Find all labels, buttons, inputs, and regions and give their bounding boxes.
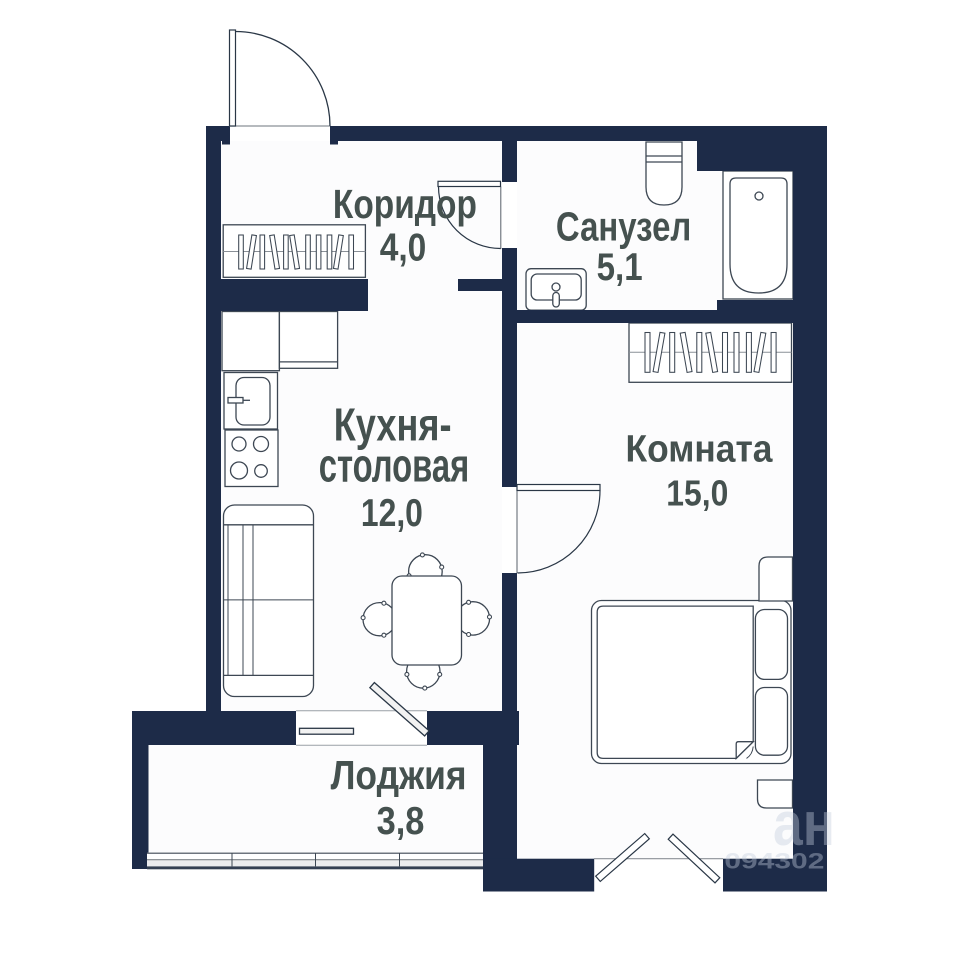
svg-text:Лоджия: Лоджия (331, 752, 467, 798)
svg-text:5,1: 5,1 (597, 246, 643, 289)
svg-text:столовая: столовая (319, 439, 470, 492)
svg-text:3,8: 3,8 (377, 800, 425, 843)
svg-text:15,0: 15,0 (666, 473, 728, 514)
svg-text:094302: 094302 (724, 849, 824, 874)
svg-text:Санузел: Санузел (556, 204, 691, 250)
svg-text:4,0: 4,0 (380, 227, 427, 270)
svg-text:Коридор: Коридор (333, 181, 477, 227)
svg-text:12,0: 12,0 (361, 492, 423, 535)
svg-text:Комната: Комната (626, 428, 774, 470)
